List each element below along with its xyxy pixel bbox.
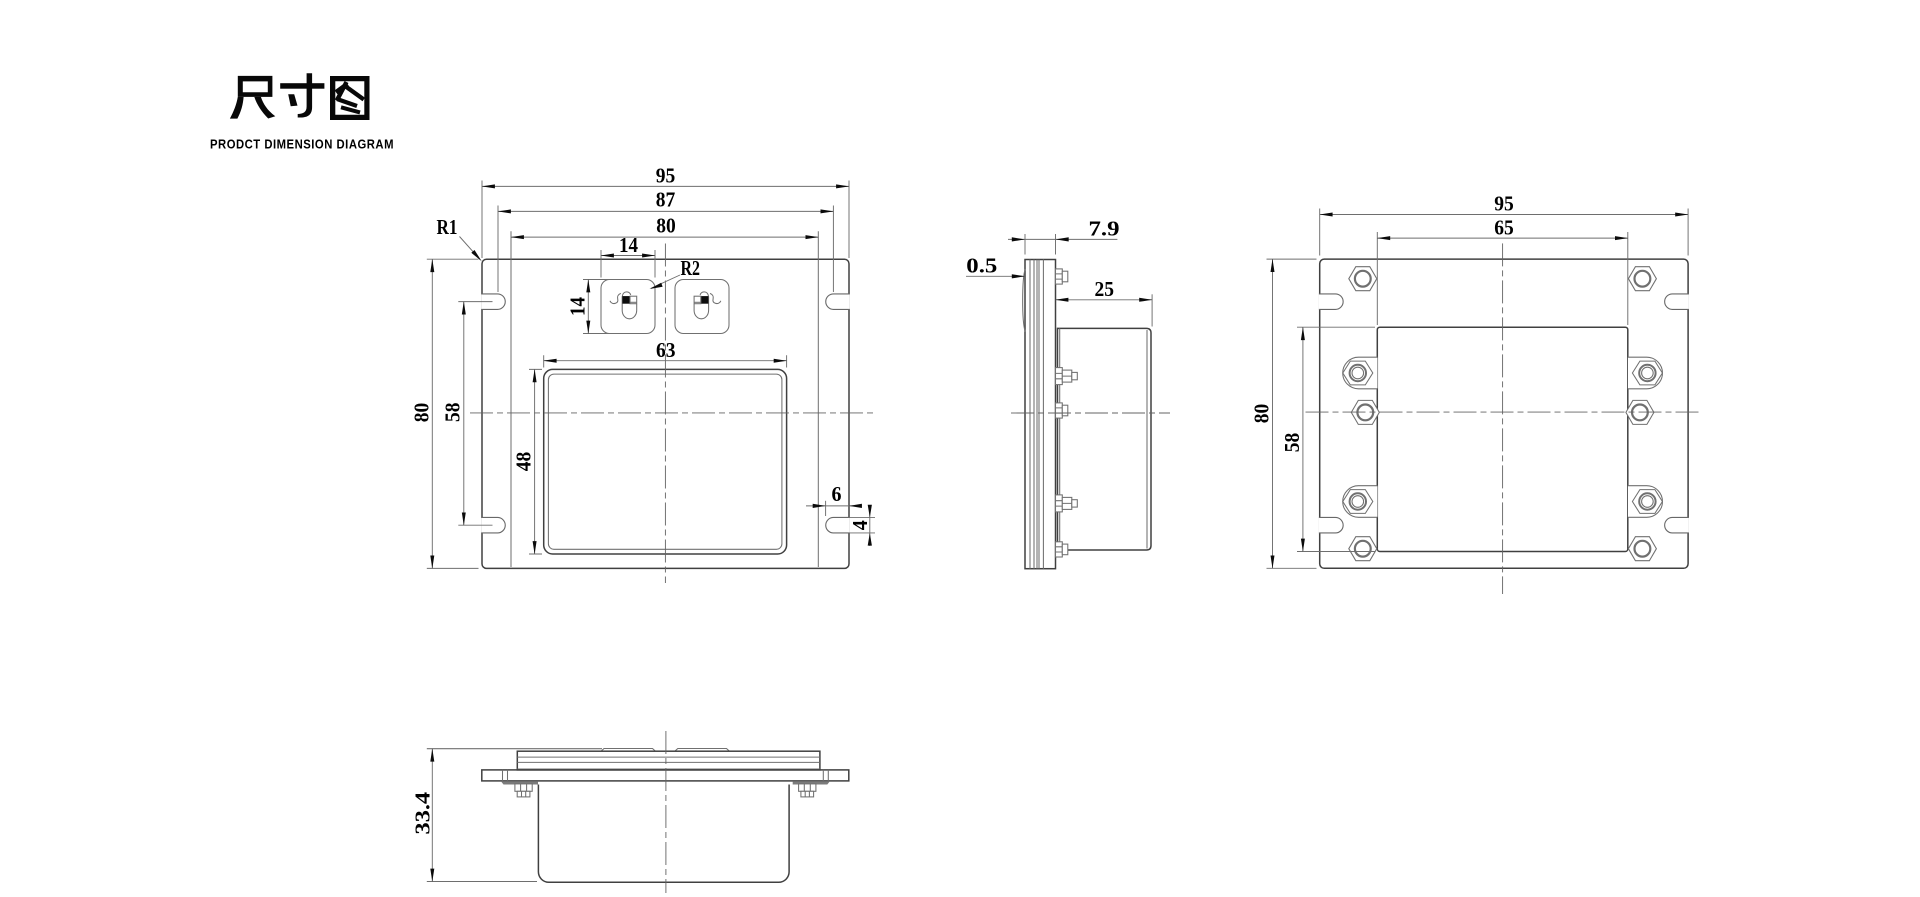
svg-text:80: 80 xyxy=(410,403,434,423)
svg-text:14: 14 xyxy=(619,233,638,257)
svg-text:R2: R2 xyxy=(681,256,701,280)
svg-text:33.4: 33.4 xyxy=(411,791,435,834)
svg-text:14: 14 xyxy=(566,297,590,316)
svg-text:0.5: 0.5 xyxy=(966,254,997,278)
svg-text:48: 48 xyxy=(512,452,536,472)
svg-text:65: 65 xyxy=(1494,215,1514,239)
svg-text:4: 4 xyxy=(848,520,872,530)
svg-text:95: 95 xyxy=(1494,192,1514,216)
svg-text:R1: R1 xyxy=(437,215,458,239)
svg-text:58: 58 xyxy=(441,402,465,422)
svg-text:PRODCT DIMENSION DIAGRAM: PRODCT DIMENSION DIAGRAM xyxy=(210,137,394,152)
svg-text:80: 80 xyxy=(656,214,676,238)
svg-text:63: 63 xyxy=(656,338,676,362)
svg-text:6: 6 xyxy=(832,482,842,506)
svg-text:87: 87 xyxy=(656,188,676,212)
svg-text:58: 58 xyxy=(1280,433,1304,453)
svg-text:80: 80 xyxy=(1250,404,1274,424)
svg-text:95: 95 xyxy=(656,163,676,187)
svg-text:25: 25 xyxy=(1094,277,1114,301)
svg-text:7.9: 7.9 xyxy=(1089,217,1120,241)
